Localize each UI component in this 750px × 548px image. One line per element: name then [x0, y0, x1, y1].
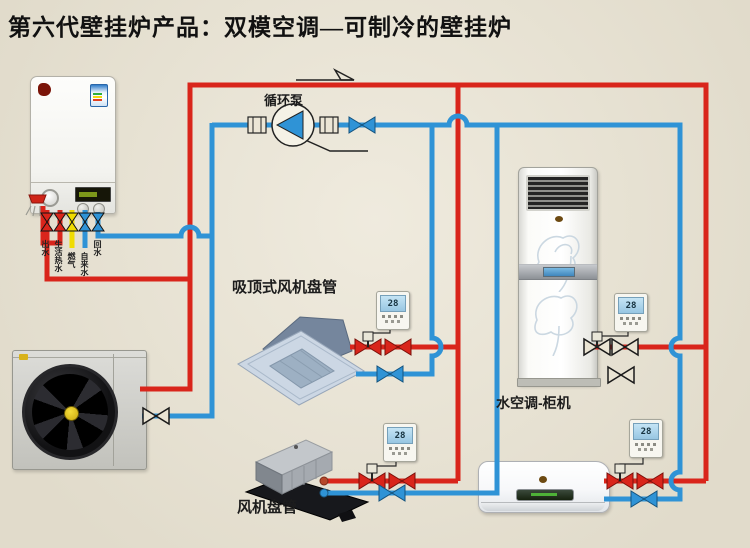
thermostat-buttons: [638, 448, 654, 451]
thermostat-wall-ac: 28: [629, 419, 663, 458]
thermostat-buttons: [392, 452, 408, 455]
label-port-gas: 燃气: [67, 252, 75, 268]
thermostat-buttons: [385, 320, 401, 323]
label-circulation-pump: 循环泵: [264, 90, 303, 109]
thermostat-buttons: [620, 317, 642, 320]
pump-bracket: [303, 139, 368, 151]
label-port-dhw: 生活热水: [54, 240, 62, 272]
thermostat-buttons: [635, 443, 657, 446]
thermostat-cassette: 28: [376, 291, 410, 330]
thermostat-display: 28: [380, 295, 406, 312]
label-floor-unit: 水空调-柜机: [496, 393, 571, 413]
piping-overlay: [0, 0, 750, 548]
label-fan-coil: 风机盘管: [237, 496, 297, 517]
label-port-supply: 出水: [41, 240, 49, 256]
thermostat-display: 28: [387, 427, 413, 444]
ceiling-cassette-unit: [238, 317, 364, 405]
label-port-return: 回水: [93, 240, 101, 256]
diagram-canvas: 第六代壁挂炉产品：双模空调—可制冷的壁挂炉: [0, 0, 750, 548]
thermostat-buttons: [623, 322, 639, 325]
fan-coil-fittings: [320, 477, 328, 497]
thermostat-buttons: [389, 447, 411, 450]
thermostat-display: 28: [618, 297, 644, 314]
label-ceiling-cassette: 吸顶式风机盘管: [232, 276, 337, 297]
thermostat-buttons: [382, 315, 404, 318]
flow-arrow-icon: [296, 70, 354, 80]
boiler-port-valves: [41, 213, 104, 231]
label-port-tap-water: 自来水: [80, 252, 88, 276]
thermostat-display: 28: [633, 423, 659, 440]
thermostat-fan-coil: 28: [383, 423, 417, 462]
thermostat-floor-unit: 28: [614, 293, 648, 332]
